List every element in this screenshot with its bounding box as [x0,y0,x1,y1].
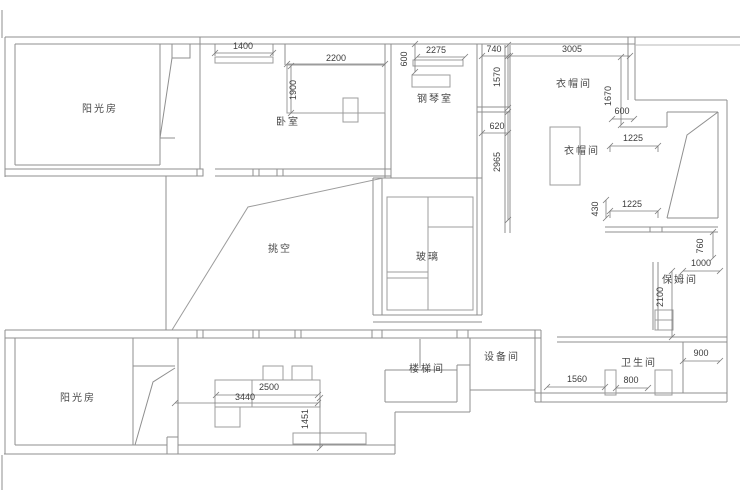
dim-1225-a: 1225 [623,133,643,143]
room-label-cloakroom-1: 衣帽间 [556,77,592,90]
dim-1400: 1400 [233,41,253,51]
wall-pier [197,330,203,338]
dim-2965: 2965 [492,152,502,172]
dim-1451: 1451 [300,409,310,429]
dim-1225-b: 1225 [622,199,642,209]
dim-2500: 2500 [259,382,279,392]
dim-1560: 1560 [567,374,587,384]
room-label-sunroom-bottom: 阳光房 [60,391,96,404]
dim-2200: 2200 [326,53,346,63]
dim-740: 740 [486,44,501,54]
dim-3005: 3005 [562,44,582,54]
wall-pier [457,330,468,338]
room-label-equipment-room: 设备间 [484,350,520,363]
toilet [655,370,672,395]
cabinet [215,407,240,427]
low-cabinet [293,433,366,444]
room-label-bedroom: 卧室 [276,115,300,128]
wall-pier [372,330,382,338]
wall-pier [197,169,203,176]
room-label-sunroom-top: 阳光房 [82,102,118,115]
dim-600-piano: 600 [399,51,409,66]
dimension-labels: 1400 2200 1900 600 2275 740 3005 1570 62… [233,41,711,429]
dim-620: 620 [489,121,504,131]
dim-1900: 1900 [288,80,298,100]
floor-plan-page: 1400 2200 1900 600 2275 740 3005 1570 62… [0,0,740,500]
dim-900: 900 [693,348,708,358]
room-label-void: 挑空 [268,242,292,255]
bed-outline [287,65,385,113]
room-label-nanny-room: 保姆间 [662,273,698,286]
chair [292,366,312,380]
dim-800: 800 [623,375,638,385]
wall-pier [650,227,662,232]
dim-2275: 2275 [426,45,446,55]
wall-pier [253,330,259,338]
room-label-bathroom: 卫生间 [621,356,657,369]
room-label-piano-room: 钢琴室 [417,92,453,105]
wall-pier [277,169,283,176]
dim-430: 430 [590,201,600,216]
dim-1570: 1570 [492,67,502,87]
window-sill [413,60,463,66]
dim-1000: 1000 [691,258,711,268]
room-label-glass: 玻璃 [416,250,440,263]
window-sill [215,57,273,63]
dim-760: 760 [695,238,705,253]
furniture [172,57,673,444]
dim-3440: 3440 [235,392,255,402]
dim-2100: 2100 [655,287,665,307]
room-label-cloakroom-2: 衣帽间 [564,144,600,157]
wall-pier [295,330,301,338]
room-labels: 阳光房 卧室 钢琴室 衣帽间 衣帽间 挑空 玻璃 保姆间 楼梯间 设备间 卫生间… [60,77,698,404]
room-label-stairwell: 楼梯间 [409,362,445,375]
dim-1670: 1670 [603,86,613,106]
nightstand [343,98,358,122]
wall-pier [253,169,259,176]
bathroom-column [605,370,616,395]
walls [2,10,740,490]
floor-plan-canvas: 1400 2200 1900 600 2275 740 3005 1570 62… [0,0,740,500]
dim-600-closet: 600 [614,106,629,116]
chair [263,366,283,380]
piano [412,75,450,87]
